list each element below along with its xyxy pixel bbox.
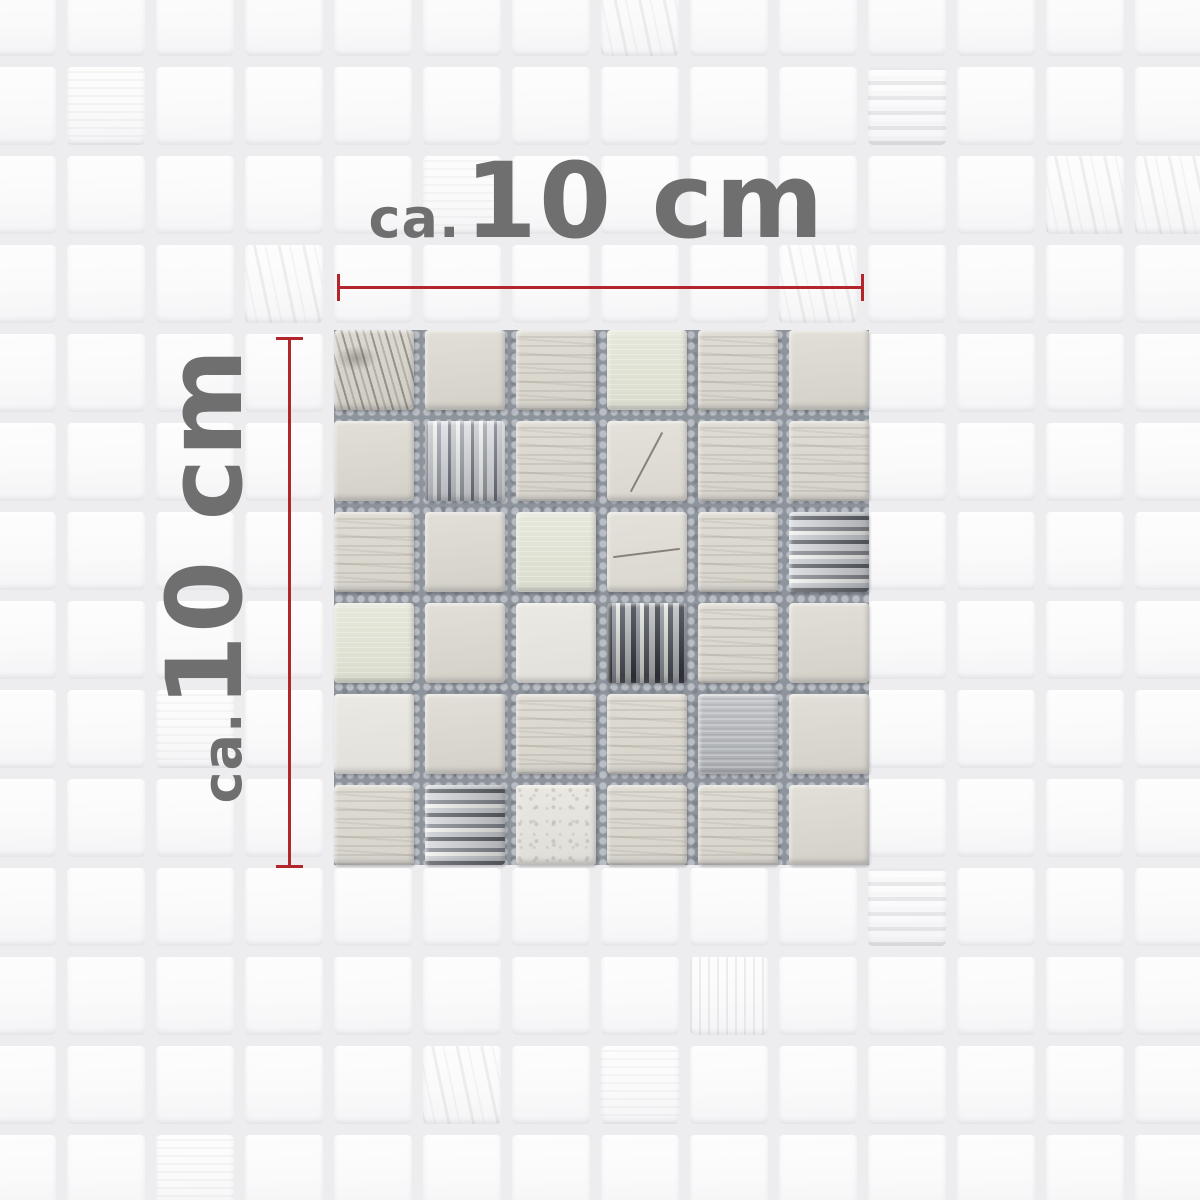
bg-tile (156, 156, 234, 234)
bg-tile (67, 601, 145, 679)
bg-tile (67, 1135, 145, 1200)
sample-tile-stripes (607, 785, 687, 865)
bg-tile (868, 779, 946, 857)
bg-tile (1135, 156, 1200, 234)
sample-tile-stripes (698, 603, 778, 683)
sample-tile-stone (789, 694, 869, 774)
bg-tile (868, 957, 946, 1035)
bg-tile (1135, 779, 1200, 857)
bg-tile (1135, 690, 1200, 768)
bg-tile (156, 868, 234, 946)
bg-tile (601, 1135, 679, 1200)
bg-tile (0, 0, 56, 56)
sample-tile-scratchd (607, 421, 687, 501)
bg-tile (245, 868, 323, 946)
bg-tile (334, 1046, 412, 1124)
sample-tile-stone (425, 330, 505, 410)
height-measure-line (288, 337, 291, 868)
bg-tile (1046, 423, 1124, 501)
bg-tile (868, 334, 946, 412)
bg-tile (601, 0, 679, 56)
sample-tile-metal (516, 512, 596, 592)
bg-tile (0, 779, 56, 857)
bg-tile (156, 1135, 234, 1200)
bg-tile (1046, 779, 1124, 857)
sample-tile-stripes (789, 421, 869, 501)
bg-tile (1135, 1135, 1200, 1200)
sample-tile-stripes (516, 421, 596, 501)
bg-tile (512, 1135, 590, 1200)
bg-tile (0, 1046, 56, 1124)
bg-tile (957, 156, 1035, 234)
sample-tile-stripes (334, 512, 414, 592)
width-value: 10 cm (465, 140, 826, 262)
bg-tile (512, 67, 590, 145)
bg-tile (334, 67, 412, 145)
bg-tile (67, 779, 145, 857)
bg-tile (1135, 512, 1200, 590)
sample-tile-stripes (516, 694, 596, 774)
sample-tile-glassv (425, 421, 505, 501)
bg-tile (67, 868, 145, 946)
bg-tile (512, 868, 590, 946)
bg-tile (0, 156, 56, 234)
sample-tile-metal (334, 603, 414, 683)
sample-tile-white (516, 603, 596, 683)
bg-tile (1046, 512, 1124, 590)
bg-tile (423, 67, 501, 145)
bg-tile (512, 1046, 590, 1124)
bg-tile (245, 1135, 323, 1200)
bg-tile (957, 601, 1035, 679)
bg-tile (1046, 334, 1124, 412)
bg-tile (957, 423, 1035, 501)
bg-tile (67, 0, 145, 56)
bg-tile (957, 957, 1035, 1035)
bg-tile (868, 67, 946, 145)
bg-tile (690, 1046, 768, 1124)
bg-tile (67, 690, 145, 768)
height-dimension-label: ca. 10 cm (144, 347, 266, 804)
bg-tile (957, 779, 1035, 857)
bg-tile (0, 245, 56, 323)
bg-tile (957, 1046, 1035, 1124)
bg-tile (957, 512, 1035, 590)
bg-tile (67, 245, 145, 323)
bg-tile (423, 1135, 501, 1200)
bg-tile (0, 512, 56, 590)
bg-tile (0, 334, 56, 412)
bg-tile (423, 0, 501, 56)
sample-tile-stripes (698, 330, 778, 410)
sample-tile-glassvd (607, 603, 687, 683)
bg-tile (690, 957, 768, 1035)
sample-tile-stripes (516, 330, 596, 410)
height-approx-prefix: ca. (191, 711, 254, 803)
sample-tile-stripes (334, 785, 414, 865)
sample-tile-speckle (516, 785, 596, 865)
bg-tile (67, 334, 145, 412)
bg-tile (1135, 0, 1200, 56)
height-value: 10 cm (144, 347, 266, 708)
bg-tile (868, 690, 946, 768)
bg-tile (957, 334, 1035, 412)
bg-tile (868, 1046, 946, 1124)
bg-tile (334, 0, 412, 56)
mosaic-sample (334, 330, 869, 865)
bg-tile (0, 423, 56, 501)
bg-tile (868, 1135, 946, 1200)
bg-tile (245, 0, 323, 56)
bg-tile (334, 868, 412, 946)
bg-tile (512, 0, 590, 56)
sample-tile-stripes (698, 512, 778, 592)
width-approx-prefix: ca. (369, 187, 461, 250)
sample-tile-white (334, 694, 414, 774)
bg-tile (601, 868, 679, 946)
bg-tile (0, 957, 56, 1035)
bg-tile (67, 512, 145, 590)
bg-tile (423, 868, 501, 946)
sample-tile-scratchh (607, 512, 687, 592)
bg-tile (779, 1046, 857, 1124)
bg-tile (245, 156, 323, 234)
bg-tile (957, 868, 1035, 946)
bg-tile (67, 957, 145, 1035)
bg-tile (1135, 334, 1200, 412)
bg-tile (156, 245, 234, 323)
sample-tile-stripes (698, 421, 778, 501)
sample-tile-glassh (425, 785, 505, 865)
product-image: ca. 10 cm ca. 10 cm (0, 0, 1200, 1200)
bg-tile (779, 868, 857, 946)
bg-tile (245, 245, 323, 323)
sample-tile-stripes (698, 785, 778, 865)
bg-tile (423, 957, 501, 1035)
bg-tile (1046, 156, 1124, 234)
bg-tile (1135, 245, 1200, 323)
bg-tile (601, 957, 679, 1035)
sample-tile-stripes (607, 694, 687, 774)
bg-tile (1135, 601, 1200, 679)
bg-tile (957, 1135, 1035, 1200)
bg-tile (690, 1135, 768, 1200)
bg-tile (245, 1046, 323, 1124)
sample-tile-stone (789, 785, 869, 865)
bg-tile (957, 245, 1035, 323)
bg-tile (957, 0, 1035, 56)
bg-tile (156, 957, 234, 1035)
sample-tile-stone (789, 330, 869, 410)
bg-tile (0, 868, 56, 946)
bg-tile (67, 1046, 145, 1124)
bg-tile (868, 601, 946, 679)
bg-tile (245, 67, 323, 145)
bg-tile (67, 423, 145, 501)
bg-tile (156, 67, 234, 145)
bg-tile (868, 156, 946, 234)
bg-tile (0, 690, 56, 768)
sample-tile-stone (425, 694, 505, 774)
bg-tile (868, 423, 946, 501)
bg-tile (779, 1135, 857, 1200)
bg-tile (423, 1046, 501, 1124)
bg-tile (1135, 1046, 1200, 1124)
bg-tile (779, 67, 857, 145)
bg-tile (334, 957, 412, 1035)
bg-tile (156, 0, 234, 56)
bg-tile (690, 67, 768, 145)
bg-tile (957, 690, 1035, 768)
bg-tile (67, 67, 145, 145)
bg-tile (779, 0, 857, 56)
bg-tile (1046, 1135, 1124, 1200)
bg-tile (1046, 67, 1124, 145)
width-measure-line (337, 286, 864, 289)
bg-tile (245, 957, 323, 1035)
bg-tile (601, 1046, 679, 1124)
bg-tile (0, 67, 56, 145)
sample-tile-metal (607, 330, 687, 410)
bg-tile (0, 601, 56, 679)
bg-tile (1135, 957, 1200, 1035)
sample-tile-marble (334, 330, 414, 410)
sample-tile-stone (789, 603, 869, 683)
bg-tile (957, 67, 1035, 145)
bg-tile (1046, 957, 1124, 1035)
sample-tile-stone (334, 421, 414, 501)
bg-tile (1046, 601, 1124, 679)
width-dimension-label: ca. 10 cm (369, 140, 826, 262)
bg-tile (334, 1135, 412, 1200)
bg-tile (1046, 0, 1124, 56)
bg-tile (1135, 423, 1200, 501)
sample-tile-metal2 (698, 694, 778, 774)
bg-tile (868, 512, 946, 590)
bg-tile (1046, 690, 1124, 768)
bg-tile (156, 1046, 234, 1124)
bg-tile (0, 1135, 56, 1200)
sample-tile-stone (425, 603, 505, 683)
bg-tile (601, 67, 679, 145)
bg-tile (1046, 245, 1124, 323)
bg-tile (868, 868, 946, 946)
bg-tile (690, 0, 768, 56)
bg-tile (690, 868, 768, 946)
sample-tile-glassh (789, 512, 869, 592)
bg-tile (1135, 868, 1200, 946)
bg-tile (1135, 67, 1200, 145)
bg-tile (1046, 868, 1124, 946)
bg-tile (1046, 1046, 1124, 1124)
bg-tile (868, 0, 946, 56)
sample-tile-stone (425, 512, 505, 592)
bg-tile (67, 156, 145, 234)
bg-tile (512, 957, 590, 1035)
bg-tile (868, 245, 946, 323)
bg-tile (779, 957, 857, 1035)
